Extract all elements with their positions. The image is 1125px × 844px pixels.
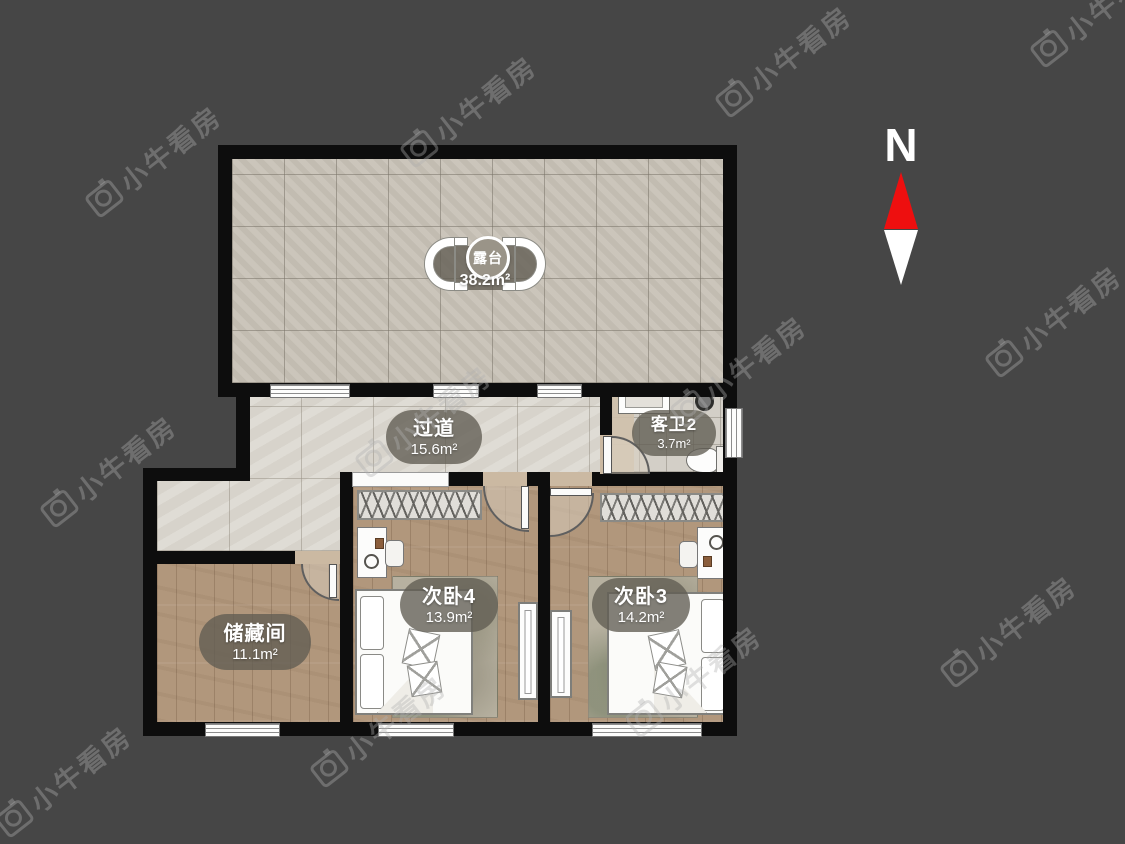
shaft-panel xyxy=(518,602,538,700)
wall-niche xyxy=(352,472,449,487)
room-name: 次卧4 xyxy=(422,586,476,608)
watermark: 小牛看房 xyxy=(980,255,1125,384)
watermark: 小牛看房 xyxy=(0,715,139,844)
room-bathroom2-label: 客卫2 3.7m² xyxy=(632,410,716,456)
desk-icon xyxy=(357,527,387,578)
compass-red-triangle xyxy=(884,172,918,229)
room-name: 露台 xyxy=(473,248,503,268)
watermark-logo-icon xyxy=(1029,28,1071,69)
door-opening xyxy=(483,472,527,486)
watermark: 小牛看房 xyxy=(935,565,1084,694)
door-leaf xyxy=(329,564,337,598)
pillow-icon xyxy=(360,654,384,709)
terrace-door-window xyxy=(433,384,479,398)
wall xyxy=(538,486,550,736)
window xyxy=(725,408,743,458)
watermark: 小牛看房 xyxy=(1025,0,1125,74)
room-hallway-label: 过道 15.6m² xyxy=(386,410,482,464)
pillow-icon xyxy=(701,657,725,711)
wall xyxy=(600,397,612,435)
room-area: 38.2m² xyxy=(417,272,553,290)
door-leaf xyxy=(521,486,529,529)
room-area: 3.7m² xyxy=(657,437,690,450)
watermark-text: 小牛看房 xyxy=(21,715,140,820)
room-area: 13.9m² xyxy=(426,610,473,625)
throw-pillow-icon xyxy=(652,662,687,699)
wardrobe-icon xyxy=(600,493,730,522)
door-opening xyxy=(295,551,340,564)
terrace-door-window xyxy=(537,384,582,398)
pillow-icon xyxy=(701,599,725,653)
watermark-text: 小牛看房 xyxy=(1011,255,1125,360)
panel-bar xyxy=(558,617,565,693)
desk-item-icon xyxy=(703,556,712,567)
room-area: 15.6m² xyxy=(411,442,458,457)
watermark-logo-icon xyxy=(84,178,126,219)
wall xyxy=(143,551,295,564)
watermark-text: 小牛看房 xyxy=(111,95,230,200)
desk-item-icon xyxy=(375,538,384,549)
terrace-door-window xyxy=(270,384,350,398)
wall xyxy=(143,468,157,736)
watermark-logo-icon xyxy=(0,798,35,839)
wardrobe-icon xyxy=(357,490,482,520)
watermark: 小牛看房 xyxy=(710,0,859,124)
panel-bar xyxy=(525,610,532,695)
north-arrow: N xyxy=(868,122,934,287)
chair-icon xyxy=(385,540,404,567)
chair-icon xyxy=(679,541,698,568)
wall xyxy=(340,472,353,736)
room-name: 储藏间 xyxy=(224,623,287,645)
wall xyxy=(218,145,737,159)
lamp-icon xyxy=(364,554,379,569)
door-leaf xyxy=(550,488,592,496)
room-bedroom4-label: 次卧4 13.9m² xyxy=(400,578,498,632)
watermark-text: 小牛看房 xyxy=(1056,0,1125,50)
compass-label: N xyxy=(884,122,917,168)
watermark-logo-icon xyxy=(984,338,1026,379)
throw-pillow-icon xyxy=(407,661,443,697)
floor-plan: 露台 38.2m² 过道 15.6m² 客卫2 3.7m² 储藏间 11.1m²… xyxy=(0,0,1125,844)
watermark-text: 小牛看房 xyxy=(426,45,545,150)
room-name: 过道 xyxy=(413,418,455,440)
window xyxy=(205,723,280,737)
wall xyxy=(236,383,250,481)
room-storage-label: 储藏间 11.1m² xyxy=(199,614,311,670)
lamp-icon xyxy=(709,535,724,550)
room-bedroom3-label: 次卧3 14.2m² xyxy=(592,578,690,632)
pillow-icon xyxy=(360,596,384,650)
room-name: 客卫2 xyxy=(651,416,697,435)
watermark-logo-icon xyxy=(714,78,756,119)
window xyxy=(592,723,702,737)
compass-white-triangle xyxy=(884,230,918,285)
room-area: 14.2m² xyxy=(618,610,665,625)
wall xyxy=(218,145,232,397)
sink-basin xyxy=(625,396,663,408)
watermark-logo-icon xyxy=(39,488,81,529)
watermark-logo-icon xyxy=(309,748,351,789)
room-terrace-label: 露台 38.2m² xyxy=(417,236,553,292)
window xyxy=(378,723,454,737)
watermark: 小牛看房 xyxy=(80,95,229,224)
door-opening xyxy=(550,472,592,486)
shaft-panel xyxy=(550,610,572,698)
watermark-text: 小牛看房 xyxy=(966,565,1085,670)
watermark-text: 小牛看房 xyxy=(741,0,860,100)
room-name: 次卧3 xyxy=(614,586,668,608)
door-leaf xyxy=(603,436,612,474)
room-area: 11.1m² xyxy=(232,647,278,662)
watermark-logo-icon xyxy=(939,648,981,689)
wall xyxy=(143,468,250,481)
